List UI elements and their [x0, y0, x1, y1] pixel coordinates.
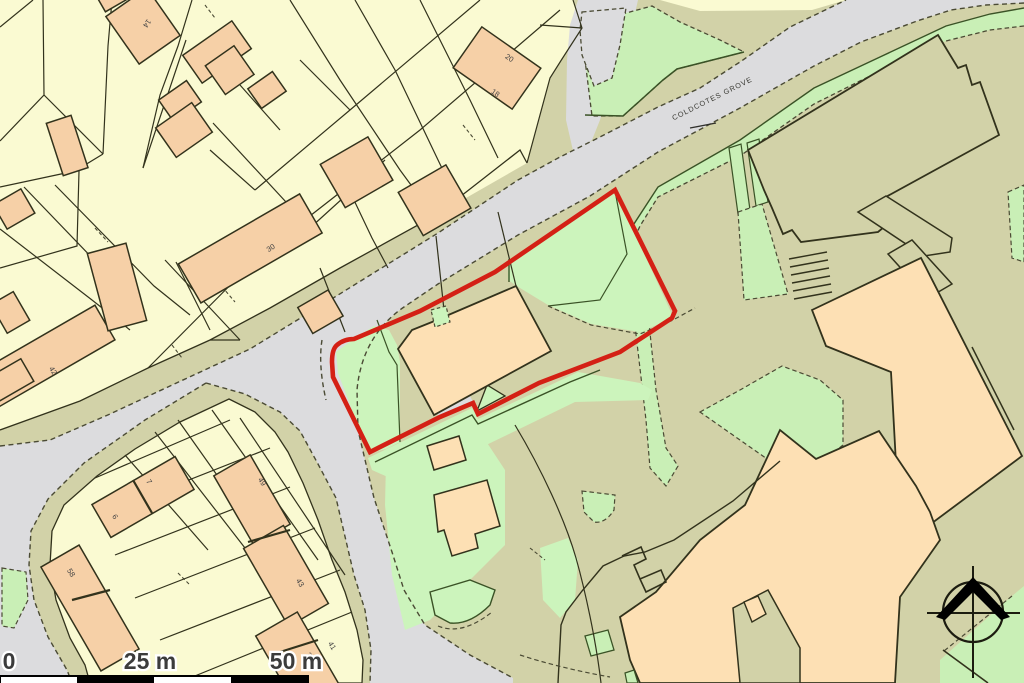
svg-text:50 m: 50 m	[270, 648, 322, 674]
svg-text:0: 0	[3, 648, 16, 674]
svg-text:25 m: 25 m	[124, 648, 176, 674]
